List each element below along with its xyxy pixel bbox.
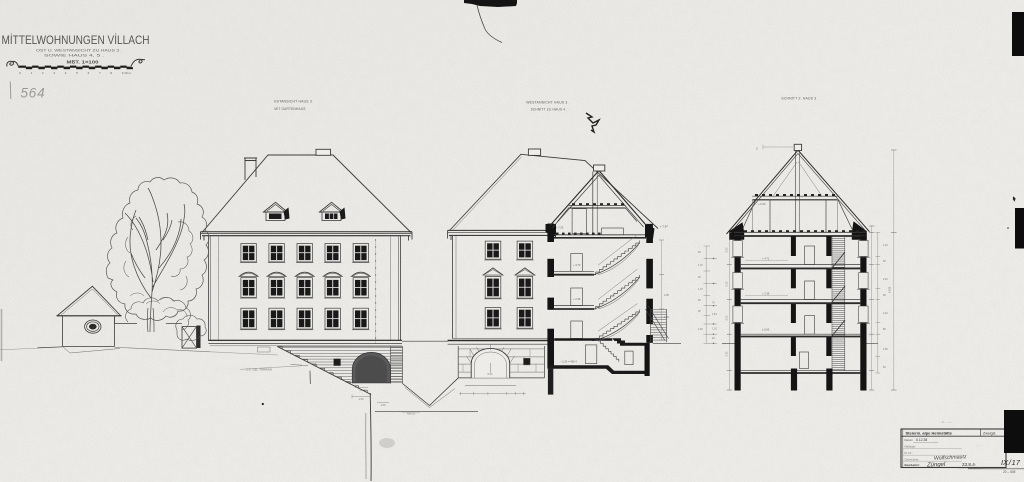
- svg-text:+ 2.35: + 2.35: [573, 297, 581, 301]
- svg-text:…ь…—: …ь…—: [938, 419, 953, 424]
- svg-text:OST U. WESTANSICHT ZU HAUS 3 .: OST U. WESTANSICHT ZU HAUS 3 .: [36, 48, 122, 52]
- svg-text:Pl.-Nr.:: Pl.-Nr.:: [905, 451, 913, 455]
- svg-text:2.42: 2.42: [883, 278, 888, 281]
- svg-text:..…: ..…: [976, 443, 981, 447]
- svg-text:SCHNİTT 2. HAUS 3 .: SCHNİTT 2. HAUS 3 .: [781, 96, 818, 101]
- svg-text:OSTANSICHT HAUS 3 .: OSTANSICHT HAUS 3 .: [274, 100, 314, 104]
- svg-text:SOWIE HAUS 4, 5 .: SOWIE HAUS 4, 5 .: [44, 54, 104, 58]
- svg-text:+ 4.70: + 4.70: [573, 263, 581, 267]
- svg-text:± 0.00: ± 0.00: [762, 328, 770, 332]
- svg-text:10 m.: 10 m.: [124, 71, 132, 75]
- svg-text:+ 7.97: + 7.97: [660, 225, 668, 229]
- svg-text:3.20: 3.20: [726, 247, 729, 252]
- svg-text:6.12.38: 6.12.38: [916, 438, 927, 442]
- svg-text:Datum: Datum: [905, 438, 914, 442]
- svg-text:14.88: 14.88: [889, 286, 892, 293]
- svg-text:20 – 605: 20 – 605: [1003, 470, 1016, 474]
- svg-text:Züngel: Züngel: [926, 462, 946, 469]
- svg-text:+ 6.40: + 6.40: [758, 202, 766, 206]
- svg-text:490,31: 490,31: [407, 412, 415, 416]
- svg-text:3.30: 3.30: [726, 351, 729, 356]
- svg-text:+ 4.71: + 4.71: [762, 257, 770, 261]
- svg-text:564: 564: [21, 86, 46, 101]
- svg-text:+ 7.26: + 7.26: [556, 226, 564, 230]
- svg-text:Gezeichnet:: Gezeichnet:: [905, 457, 920, 461]
- svg-text:2.85: 2.85: [664, 294, 669, 297]
- svg-text:Bearbeitet:: Bearbeitet:: [905, 463, 920, 467]
- svg-text:SCHNİTT ZU HAUS 4 .: SCHNİTT ZU HAUS 4 .: [531, 107, 568, 112]
- svg-text:1.02: 1.02: [712, 328, 717, 331]
- svg-text:2.42: 2.42: [883, 312, 888, 315]
- svg-text:·0.60·: ·0.60·: [487, 373, 493, 376]
- svg-text:2.50: 2.50: [883, 348, 888, 351]
- svg-text:Maßstab:: Maßstab:: [905, 445, 916, 449]
- svg-text:2.20: 2.20: [698, 328, 703, 331]
- svg-text:+ 2.36: + 2.36: [762, 291, 770, 295]
- svg-text:1.50: 1.50: [358, 397, 364, 401]
- svg-text:Zweigst.: Zweigst.: [983, 431, 996, 435]
- svg-text:1.76: 1.76: [698, 264, 703, 267]
- svg-text:MßT. 1×100: MßT. 1×100: [67, 59, 100, 64]
- svg-text:3.20: 3.20: [726, 315, 729, 320]
- svg-text:2.85: 2.85: [664, 316, 669, 319]
- svg-text:MİT GARTENHAUS: MİT GARTENHAUS: [274, 106, 305, 111]
- svg-text:O.K. GEL. TERRAİN: O.K. GEL. TERRAİN: [246, 367, 272, 372]
- svg-text:IX / 17: IX / 17: [1001, 458, 1021, 467]
- svg-text:2.42: 2.42: [883, 244, 888, 247]
- svg-text:1.84: 1.84: [712, 313, 717, 316]
- svg-text:MİTTELWOHNUNGEN VİLLACH: MİTTELWOHNUNGEN VİLLACH: [2, 33, 150, 47]
- svg-text:– 2.20 = 499.4: – 2.20 = 499.4: [560, 359, 577, 363]
- svg-text:3.20: 3.20: [726, 281, 729, 286]
- svg-text:WESTANSICHT HAUS 3 .: WESTANSICHT HAUS 3 .: [526, 101, 569, 105]
- svg-text:Steierm. alpe Heimstätte: Steierm. alpe Heimstätte: [906, 430, 953, 435]
- svg-text:1.72: 1.72: [698, 288, 703, 291]
- svg-text:23.8.4·: 23.8.4·: [962, 462, 976, 467]
- svg-text:1.50: 1.50: [381, 404, 386, 407]
